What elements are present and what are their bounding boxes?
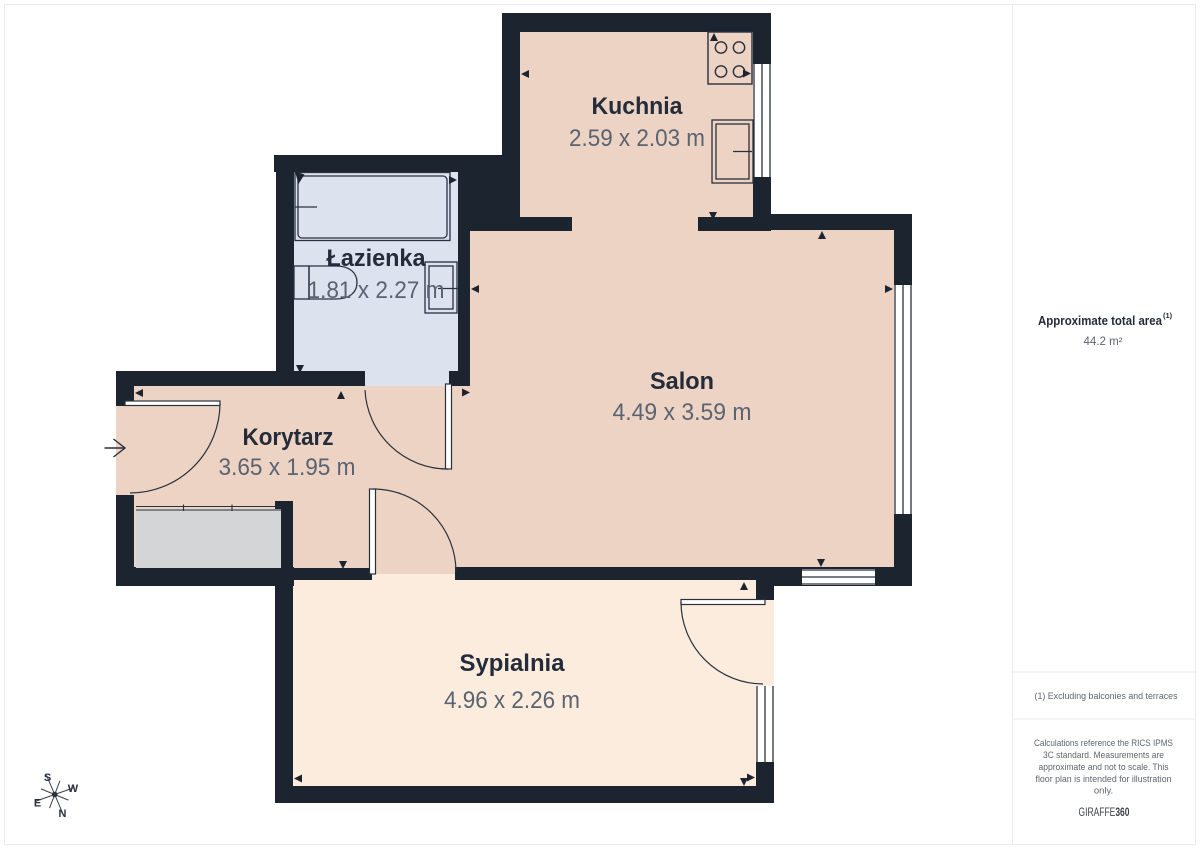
svg-text:S: S [44,772,51,784]
svg-text:2.59 x 2.03 m: 2.59 x 2.03 m [569,125,705,152]
svg-text:Calculations reference the RIC: Calculations reference the RICS IPMS [1034,738,1173,749]
svg-text:Kuchnia: Kuchnia [592,93,684,120]
svg-text:E: E [34,798,41,810]
svg-text:GIRAFFE360: GIRAFFE360 [1079,807,1130,819]
svg-text:1.81 x 2.27 m: 1.81 x 2.27 m [308,277,445,304]
svg-text:Korytarz: Korytarz [243,424,334,451]
svg-text:only.: only. [1094,786,1113,797]
svg-text:Approximate total area: Approximate total area [1038,314,1163,328]
svg-text:Sypialnia: Sypialnia [460,650,566,677]
svg-text:3C standard. Measurements are: 3C standard. Measurements are [1043,750,1164,761]
svg-text:44.2 m²: 44.2 m² [1084,336,1123,348]
svg-text:W: W [68,783,79,795]
svg-text:N: N [59,808,67,820]
svg-text:(1): (1) [1163,311,1173,320]
svg-text:floor plan is intended for ill: floor plan is intended for illustration [1036,774,1172,785]
svg-text:approximate and not to scale.: approximate and not to scale. This [1039,762,1169,773]
svg-text:4.49 x 3.59 m: 4.49 x 3.59 m [613,399,752,426]
svg-text:3.65 x 1.95 m: 3.65 x 1.95 m [219,454,356,481]
svg-text:(1) Excluding balconies and te: (1) Excluding balconies and terraces [1035,691,1178,702]
svg-text:4.96 x 2.26 m: 4.96 x 2.26 m [444,687,580,714]
svg-text:Łazienka: Łazienka [327,245,427,272]
svg-text:Salon: Salon [650,368,714,395]
